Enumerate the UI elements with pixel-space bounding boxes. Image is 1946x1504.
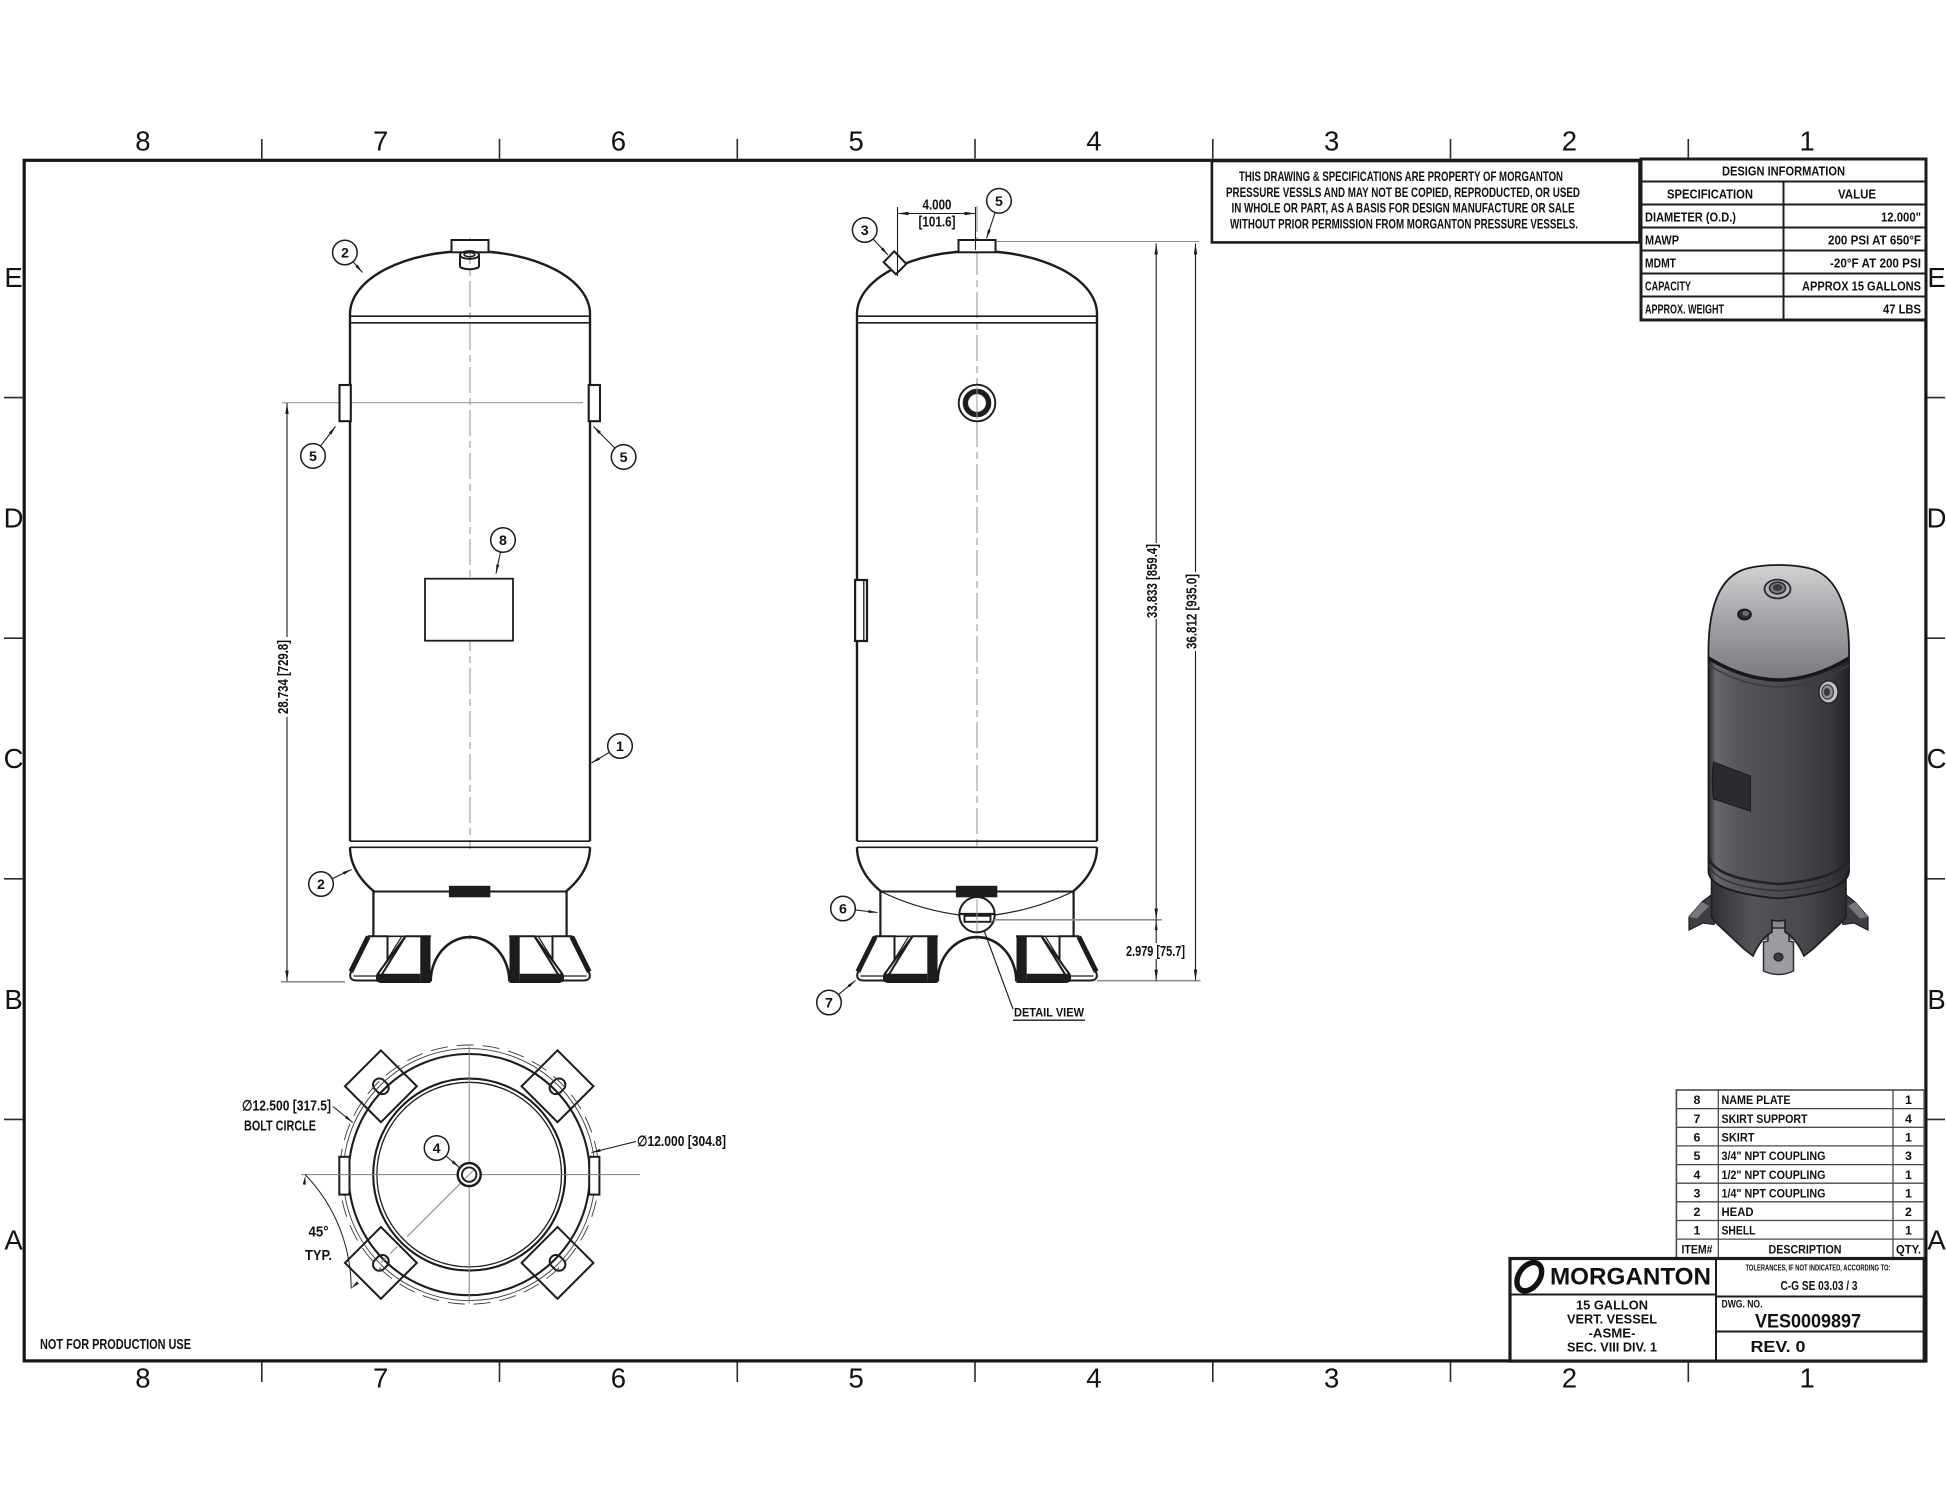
svg-text:D: D [1927,503,1946,534]
svg-text:200 PSI AT 650°F: 200 PSI AT 650°F [1828,234,1921,248]
svg-text:IN WHOLE OR PART, AS A BASIS F: IN WHOLE OR PART, AS A BASIS FOR DESIGN … [1232,201,1575,216]
svg-text:MORGANTON: MORGANTON [1550,1264,1711,1291]
svg-text:MDMT: MDMT [1645,257,1676,271]
svg-text:1: 1 [1905,1224,1912,1238]
svg-text:4: 4 [1905,1112,1912,1126]
svg-text:1: 1 [1800,1363,1815,1394]
svg-text:5: 5 [1694,1149,1701,1163]
svg-text:4: 4 [1694,1168,1701,1182]
svg-text:6: 6 [611,1363,626,1394]
svg-text:8: 8 [499,533,507,549]
svg-text:3/4" NPT COUPLING: 3/4" NPT COUPLING [1722,1149,1826,1163]
svg-text:3: 3 [861,223,869,239]
svg-text:BOLT CIRCLE: BOLT CIRCLE [244,1119,316,1135]
svg-text:33.833 [859.4]: 33.833 [859.4] [1145,544,1161,618]
svg-text:DETAIL VIEW: DETAIL VIEW [1014,1006,1084,1020]
svg-text:7: 7 [373,1363,388,1394]
svg-text:1/2" NPT COUPLING: 1/2" NPT COUPLING [1722,1168,1826,1182]
svg-text:5: 5 [848,1363,863,1394]
svg-text:HEAD: HEAD [1722,1205,1754,1219]
svg-text:APPROX 15 GALLONS: APPROX 15 GALLONS [1802,280,1921,294]
svg-text:2: 2 [1562,126,1577,157]
svg-text:-20°F AT 200 PSI: -20°F AT 200 PSI [1830,257,1921,271]
svg-text:2.979 [75.7]: 2.979 [75.7] [1126,944,1185,960]
svg-text:NAME PLATE: NAME PLATE [1722,1093,1791,1107]
svg-text:NOT FOR PRODUCTION USE: NOT FOR PRODUCTION USE [40,1337,191,1353]
svg-text:WITHOUT PRIOR PERMISSION FROM: WITHOUT PRIOR PERMISSION FROM MORGANTON … [1230,216,1578,231]
svg-text:1: 1 [1905,1130,1912,1144]
svg-text:MAWP: MAWP [1645,234,1679,248]
svg-text:REV. 0: REV. 0 [1751,1339,1806,1356]
svg-text:3: 3 [1324,1363,1339,1394]
svg-text:4.000: 4.000 [923,198,952,214]
svg-text:1: 1 [616,739,624,755]
svg-text:DWG. NO.: DWG. NO. [1722,1299,1763,1311]
svg-text:7: 7 [1694,1112,1701,1126]
svg-text:12.000": 12.000" [1881,211,1921,225]
svg-text:VES0009897: VES0009897 [1755,1311,1861,1333]
svg-text:CAPACITY: CAPACITY [1645,280,1691,294]
svg-text:D: D [4,503,24,534]
svg-text:VALUE: VALUE [1838,188,1876,202]
svg-text:2: 2 [1694,1205,1701,1219]
svg-text:2: 2 [1562,1363,1577,1394]
svg-text:B: B [4,984,22,1015]
svg-text:5: 5 [995,194,1003,210]
svg-text:45°: 45° [309,1225,329,1241]
svg-text:SPECIFICATION: SPECIFICATION [1667,188,1753,202]
svg-text:[101.6]: [101.6] [919,215,956,231]
svg-text:A: A [4,1224,23,1255]
svg-text:28.734 [729.8]: 28.734 [729.8] [276,640,292,714]
svg-text:6: 6 [1694,1130,1701,1144]
svg-text:SEC. VIII DIV. 1: SEC. VIII DIV. 1 [1567,1340,1657,1355]
svg-text:∅12.000 [304.8]: ∅12.000 [304.8] [637,1134,726,1150]
svg-text:SHELL: SHELL [1722,1224,1756,1238]
svg-text:DIAMETER (O.D.): DIAMETER (O.D.) [1645,211,1736,225]
svg-text:DESCRIPTION: DESCRIPTION [1769,1242,1842,1256]
svg-text:E: E [4,262,22,293]
svg-text:3: 3 [1694,1186,1701,1200]
svg-text:7: 7 [825,996,833,1012]
svg-text:A: A [1927,1224,1946,1255]
svg-text:∅12.500 [317.5]: ∅12.500 [317.5] [242,1099,331,1115]
svg-text:C: C [4,743,24,774]
svg-text:47 LBS: 47 LBS [1883,303,1921,317]
svg-text:1: 1 [1800,126,1815,157]
svg-text:15 GALLON: 15 GALLON [1576,1298,1648,1313]
svg-text:4: 4 [433,1141,441,1157]
svg-text:5: 5 [620,450,628,466]
svg-text:SKIRT SUPPORT: SKIRT SUPPORT [1722,1112,1808,1126]
svg-text:3: 3 [1905,1149,1912,1163]
svg-text:C-G SE 03.03 / 3: C-G SE 03.03 / 3 [1781,1279,1858,1293]
svg-text:2: 2 [341,246,349,262]
svg-text:PRESSURE VESSLS AND MAY NOT BE: PRESSURE VESSLS AND MAY NOT BE COPIED, R… [1226,185,1580,200]
svg-text:7: 7 [373,126,388,157]
svg-text:SKIRT: SKIRT [1722,1130,1755,1144]
svg-text:ITEM#: ITEM# [1682,1242,1713,1256]
svg-text:QTY.: QTY. [1896,1242,1921,1256]
svg-text:2: 2 [317,877,325,893]
svg-text:TOLERANCES, IF NOT INDICATED,: TOLERANCES, IF NOT INDICATED, ACCORDING … [1746,1264,1891,1273]
svg-text:1: 1 [1905,1093,1912,1107]
svg-text:6: 6 [839,902,847,918]
svg-text:8: 8 [1694,1093,1701,1107]
svg-text:1: 1 [1905,1186,1912,1200]
svg-text:2: 2 [1905,1205,1912,1219]
svg-text:B: B [1927,984,1945,1015]
svg-text:TYP.: TYP. [305,1248,332,1264]
svg-text:E: E [1927,262,1945,293]
svg-text:6: 6 [611,126,626,157]
svg-text:8: 8 [135,1363,150,1394]
svg-text:APPROX. WEIGHT: APPROX. WEIGHT [1645,303,1724,317]
svg-text:C: C [1927,743,1946,774]
svg-text:5: 5 [848,126,863,157]
svg-text:5: 5 [309,449,317,465]
svg-text:36.812 [935.0]: 36.812 [935.0] [1185,574,1201,649]
svg-text:-ASME-: -ASME- [1589,1326,1636,1341]
svg-text:1: 1 [1694,1224,1701,1238]
svg-text:8: 8 [135,126,150,157]
svg-text:1/4" NPT COUPLING: 1/4" NPT COUPLING [1722,1186,1826,1200]
svg-text:DESIGN INFORMATION: DESIGN INFORMATION [1722,165,1845,179]
svg-text:3: 3 [1324,126,1339,157]
svg-text:4: 4 [1086,126,1101,157]
svg-text:VERT. VESSEL: VERT. VESSEL [1567,1312,1657,1327]
svg-text:THIS DRAWING & SPECIFICATIONS: THIS DRAWING & SPECIFICATIONS ARE PROPER… [1239,169,1563,184]
svg-text:4: 4 [1086,1363,1101,1394]
svg-text:1: 1 [1905,1168,1912,1182]
